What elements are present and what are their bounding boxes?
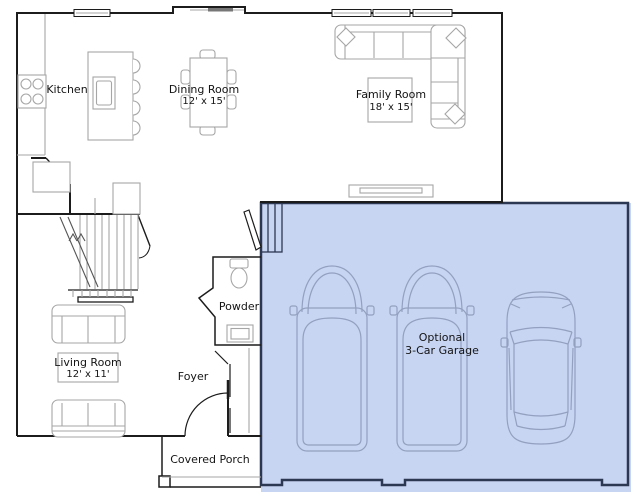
pantry-closet [33, 162, 70, 192]
toilet-tank [230, 259, 248, 268]
toilet-bowl [231, 268, 247, 288]
powder-room-label: Powder [219, 300, 260, 313]
vanity-basin [231, 329, 249, 340]
burner [33, 79, 43, 89]
floor-plan: Optional 3-Car Garage [0, 0, 637, 501]
living-room-label: Living Room [54, 356, 122, 369]
tv [360, 188, 422, 193]
dining-chair [227, 95, 236, 109]
stove [18, 75, 46, 108]
family-room-label: Family Room [356, 88, 426, 101]
burner [21, 79, 31, 89]
burner [21, 94, 31, 104]
kitchen-label: Kitchen [46, 83, 87, 96]
dining-chair [227, 70, 236, 84]
stair-landing [78, 297, 133, 302]
dining-room-label: Dining Room [169, 83, 239, 96]
garage: Optional 3-Car Garage [261, 203, 631, 492]
window-family-1 [332, 10, 371, 17]
family-room-dims: 18' x 15' [369, 102, 412, 113]
dining-room-dims: 12' x 15' [182, 96, 225, 107]
window-family-3 [413, 10, 452, 17]
window-kitchen [74, 10, 110, 17]
garage-label-line2: 3-Car Garage [405, 344, 479, 357]
floor-plan-canvas: Optional 3-Car Garage [0, 0, 637, 501]
burner [33, 94, 43, 104]
window-family-2 [373, 10, 410, 17]
covered-porch-label: Covered Porch [170, 453, 250, 466]
garage-label-line1: Optional [419, 331, 466, 344]
island-sink-basin [97, 81, 112, 105]
stair-closet-box [113, 183, 140, 214]
foyer-label: Foyer [178, 370, 209, 383]
living-room-dims: 12' x 11' [66, 369, 109, 380]
porch-post [159, 476, 170, 487]
dining-chair [181, 70, 190, 84]
